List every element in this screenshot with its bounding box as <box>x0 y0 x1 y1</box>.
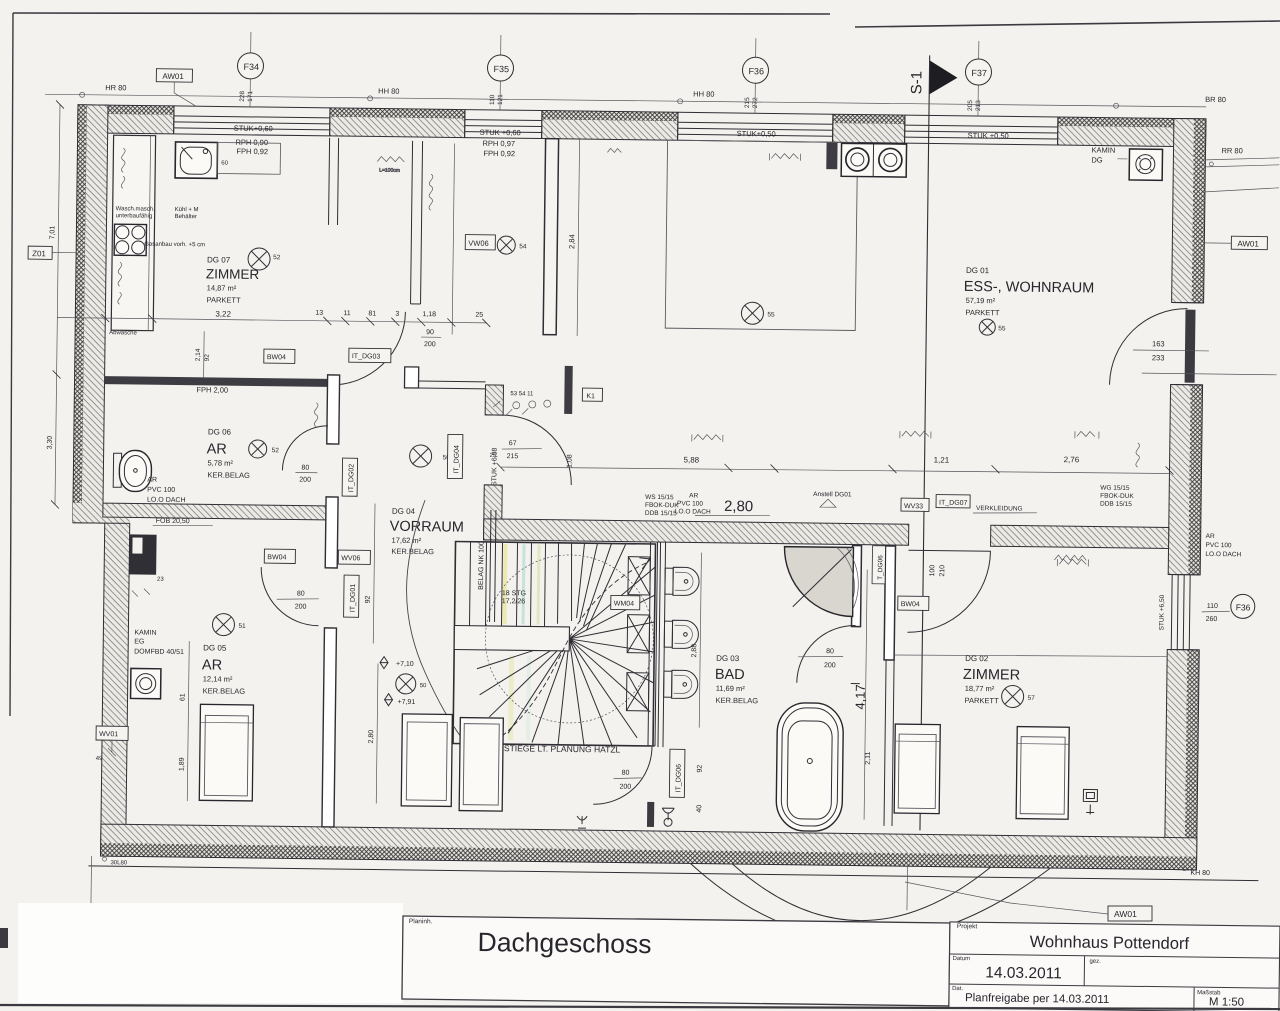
svg-text:F36: F36 <box>748 66 764 76</box>
svg-text:T_DG06: T_DG06 <box>877 555 884 580</box>
svg-text:RR 80: RR 80 <box>1221 146 1242 155</box>
svg-text:ZIMMER: ZIMMER <box>206 266 260 282</box>
svg-text:PVC 100: PVC 100 <box>1206 542 1232 549</box>
svg-text:FPH 0,92: FPH 0,92 <box>236 147 268 156</box>
svg-text:M 1:50: M 1:50 <box>1209 996 1244 1008</box>
svg-text:PARKETT: PARKETT <box>965 308 1000 317</box>
svg-text:DG 01: DG 01 <box>966 266 990 275</box>
svg-text:52: 52 <box>273 254 281 261</box>
svg-text:F35: F35 <box>493 64 509 74</box>
svg-text:Wasch.masch.: Wasch.masch. <box>116 206 156 212</box>
svg-text:BELAG NK 100: BELAG NK 100 <box>478 541 486 590</box>
svg-text:200: 200 <box>619 784 631 791</box>
svg-text:AR: AR <box>147 477 157 484</box>
svg-text:51: 51 <box>238 623 246 630</box>
svg-text:IT_DG03: IT_DG03 <box>352 353 381 360</box>
svg-text:Abwäsche: Abwäsche <box>109 330 137 336</box>
svg-text:DG 03: DG 03 <box>716 654 740 663</box>
svg-text:17,2/26: 17,2/26 <box>502 598 526 605</box>
svg-text:STUK+0,50: STUK+0,50 <box>737 129 776 138</box>
svg-text:HH 80: HH 80 <box>693 89 714 98</box>
svg-text:BW04: BW04 <box>901 601 920 608</box>
svg-text:FOB 20,50: FOB 20,50 <box>156 518 190 525</box>
svg-text:5,88: 5,88 <box>684 455 700 464</box>
svg-text:12,14 m²: 12,14 m² <box>203 674 233 683</box>
svg-text:LO.O DACH: LO.O DACH <box>1205 551 1241 558</box>
svg-text:200: 200 <box>295 603 307 610</box>
svg-text:VW06: VW06 <box>468 239 489 248</box>
svg-text:FBOK-DUK: FBOK-DUK <box>1100 493 1134 500</box>
svg-text:RPH 0,97: RPH 0,97 <box>482 139 515 148</box>
svg-text:55: 55 <box>998 325 1006 332</box>
svg-text:BAD: BAD <box>715 667 745 683</box>
svg-text:57: 57 <box>1028 695 1036 702</box>
svg-text:2,84: 2,84 <box>567 234 576 249</box>
svg-text:90: 90 <box>426 329 434 336</box>
svg-text:KER.BELAG: KER.BELAG <box>716 696 759 706</box>
svg-text:F37: F37 <box>971 68 987 78</box>
svg-text:17,62 m²: 17,62 m² <box>391 536 421 545</box>
svg-text:23: 23 <box>157 577 164 583</box>
svg-text:272: 272 <box>752 97 759 108</box>
svg-text:STUK +6,50: STUK +6,50 <box>1158 594 1165 630</box>
svg-text:3: 3 <box>395 311 399 318</box>
svg-text:60: 60 <box>221 161 228 167</box>
svg-text:STUK +0,60: STUK +0,60 <box>480 128 521 138</box>
svg-text:110: 110 <box>1207 603 1218 610</box>
svg-text:ZIMMER: ZIMMER <box>963 667 1020 684</box>
svg-text:IT_DG07: IT_DG07 <box>939 500 968 507</box>
svg-text:BW04: BW04 <box>267 354 286 361</box>
svg-text:Planfreigabe per 14.03.2011: Planfreigabe per 14.03.2011 <box>965 992 1109 1006</box>
svg-text:40: 40 <box>696 805 703 813</box>
svg-text:3,30: 3,30 <box>47 436 54 450</box>
svg-text:S-1: S-1 <box>908 71 925 95</box>
svg-text:50: 50 <box>420 683 427 689</box>
svg-text:200: 200 <box>299 477 311 484</box>
svg-text:BW04: BW04 <box>267 554 286 561</box>
svg-text:11,69 m²: 11,69 m² <box>716 684 746 693</box>
svg-text:Behälter: Behälter <box>175 214 197 220</box>
svg-text:55: 55 <box>767 311 775 318</box>
svg-text:210: 210 <box>939 565 946 577</box>
svg-text:163: 163 <box>1152 339 1165 348</box>
svg-text:2,11: 2,11 <box>865 751 872 764</box>
svg-text:WG 15/15: WG 15/15 <box>1100 485 1130 492</box>
svg-text:AR: AR <box>689 492 698 499</box>
svg-text:WV33: WV33 <box>904 503 923 510</box>
svg-text:AW01: AW01 <box>1114 909 1137 919</box>
svg-text:11: 11 <box>343 310 350 317</box>
svg-text:1,21: 1,21 <box>934 456 950 465</box>
svg-text:100: 100 <box>929 565 936 577</box>
svg-text:IT_DG02: IT_DG02 <box>348 464 355 493</box>
svg-text:STUK +0,50: STUK +0,50 <box>968 131 1009 141</box>
svg-text:2,14: 2,14 <box>195 348 202 361</box>
svg-text:KAMIN: KAMIN <box>134 629 156 636</box>
svg-text:213: 213 <box>975 100 982 111</box>
svg-text:80: 80 <box>622 770 630 777</box>
svg-text:KAMIN: KAMIN <box>1091 145 1115 154</box>
svg-text:14.03.2011: 14.03.2011 <box>985 964 1062 982</box>
svg-text:AW01: AW01 <box>162 72 184 81</box>
svg-text:61: 61 <box>180 693 187 701</box>
svg-text:1,08: 1,08 <box>566 454 573 468</box>
svg-text:WM04: WM04 <box>614 600 634 607</box>
svg-text:25: 25 <box>490 453 497 459</box>
svg-text:2,80: 2,80 <box>368 730 375 744</box>
svg-text:52: 52 <box>272 447 280 454</box>
svg-text:5,78 m²: 5,78 m² <box>207 458 233 467</box>
svg-text:215: 215 <box>744 97 751 108</box>
svg-text:81: 81 <box>368 310 376 317</box>
svg-text:2,80: 2,80 <box>724 498 753 515</box>
svg-text:unterbaufähig: unterbaufähig <box>116 213 153 219</box>
svg-text:DOMFBD 40/51: DOMFBD 40/51 <box>134 648 184 656</box>
svg-text:1,18: 1,18 <box>422 311 436 318</box>
svg-text:53 54 11: 53 54 11 <box>510 391 534 397</box>
svg-text:92: 92 <box>365 595 372 603</box>
svg-text:AR: AR <box>207 441 227 457</box>
svg-text:Projekt: Projekt <box>957 923 978 930</box>
svg-text:DG 06: DG 06 <box>208 427 232 436</box>
svg-text:Planinh.: Planinh. <box>409 918 433 925</box>
svg-text:PVC 100: PVC 100 <box>147 487 175 494</box>
svg-text:LO.O DACH: LO.O DACH <box>147 497 186 504</box>
svg-text:80: 80 <box>297 591 305 598</box>
svg-text:DG 07: DG 07 <box>207 255 231 264</box>
svg-text:+7,10: +7,10 <box>396 661 414 668</box>
svg-text:Kühl + M: Kühl + M <box>175 207 199 213</box>
svg-text:ESS-, WOHNRAUM: ESS-, WOHNRAUM <box>964 279 1095 297</box>
svg-text:PVC 100: PVC 100 <box>677 500 703 507</box>
svg-text:DDB 15/15: DDB 15/15 <box>1100 501 1132 508</box>
svg-text:18 STG: 18 STG <box>502 590 526 597</box>
svg-text:DG: DG <box>1091 155 1103 164</box>
svg-text:L=100cm: L=100cm <box>379 168 400 174</box>
svg-text:Z01: Z01 <box>32 249 46 258</box>
svg-text:WS 15/15: WS 15/15 <box>645 494 674 501</box>
svg-text:215: 215 <box>507 453 519 460</box>
svg-text:KER.BELAG: KER.BELAG <box>391 547 434 557</box>
svg-text:BR 80: BR 80 <box>1205 95 1226 104</box>
svg-text:57,19 m²: 57,19 m² <box>966 296 996 305</box>
svg-text:Gasanbau vorh. +5 cm: Gasanbau vorh. +5 cm <box>144 242 205 249</box>
svg-text:PARKETT: PARKETT <box>207 295 242 304</box>
svg-text:49: 49 <box>96 756 103 762</box>
svg-text:KER.BELAG: KER.BELAG <box>207 470 250 480</box>
svg-text:DG 05: DG 05 <box>203 643 227 652</box>
svg-text:7,01: 7,01 <box>49 226 56 240</box>
svg-text:DG 04: DG 04 <box>392 507 416 516</box>
svg-text:VERKLEIDUNG: VERKLEIDUNG <box>976 505 1023 513</box>
svg-text:67: 67 <box>509 440 517 447</box>
svg-text:260: 260 <box>1206 616 1218 623</box>
svg-text:200: 200 <box>424 341 436 348</box>
svg-text:80: 80 <box>826 648 834 655</box>
svg-text:25: 25 <box>475 312 483 319</box>
svg-text:AR: AR <box>202 657 222 673</box>
svg-text:F34: F34 <box>243 62 259 72</box>
svg-text:Dachgeschoss: Dachgeschoss <box>477 927 651 959</box>
svg-text:30L80: 30L80 <box>110 860 127 866</box>
svg-text:HH 80: HH 80 <box>378 86 399 95</box>
svg-text:Datum: Datum <box>952 956 970 962</box>
svg-text:WV06: WV06 <box>341 555 360 562</box>
svg-text:92: 92 <box>697 765 704 773</box>
svg-text:WV01: WV01 <box>99 731 118 738</box>
svg-text:Dat.: Dat. <box>952 986 963 992</box>
svg-text:STUK+0,60: STUK+0,60 <box>234 124 273 133</box>
svg-text:Anstell DG01: Anstell DG01 <box>813 491 852 498</box>
svg-text:KH 80: KH 80 <box>1190 870 1210 877</box>
svg-text:K1: K1 <box>586 393 595 400</box>
svg-text:2,88: 2,88 <box>691 644 698 658</box>
svg-text:1,89: 1,89 <box>179 757 186 771</box>
svg-text:VORRAUM: VORRAUM <box>390 519 464 536</box>
svg-text:AR: AR <box>1206 533 1215 540</box>
svg-text:F36: F36 <box>1236 602 1251 612</box>
svg-text:HR 80: HR 80 <box>105 83 126 92</box>
svg-text:2,76: 2,76 <box>1064 455 1080 464</box>
svg-text:FPH 0,92: FPH 0,92 <box>483 149 515 158</box>
svg-text:IT_DG01: IT_DG01 <box>350 584 357 613</box>
svg-text:Wohnhaus Pottendorf: Wohnhaus Pottendorf <box>1030 933 1190 953</box>
svg-text:FPH 2,00: FPH 2,00 <box>196 385 228 394</box>
svg-text:IT_DG04: IT_DG04 <box>453 445 460 474</box>
svg-text:PARKETT: PARKETT <box>965 696 1000 705</box>
svg-text:200: 200 <box>824 662 836 669</box>
svg-text:14,87 m²: 14,87 m² <box>207 283 237 292</box>
svg-text:92: 92 <box>204 354 211 362</box>
svg-text:KER.BELAG: KER.BELAG <box>203 686 246 696</box>
svg-text:4,17: 4,17 <box>852 684 867 709</box>
svg-text:EG: EG <box>134 638 144 645</box>
svg-text:IT_DG06: IT_DG06 <box>675 764 682 793</box>
svg-text:110: 110 <box>489 94 496 105</box>
svg-text:3,22: 3,22 <box>215 309 231 318</box>
svg-text:+7,91: +7,91 <box>397 699 415 706</box>
svg-text:13: 13 <box>315 310 323 317</box>
svg-text:18,77 m²: 18,77 m² <box>965 684 995 693</box>
svg-text:LO.O DACH: LO.O DACH <box>675 508 711 515</box>
svg-text:STIEGE LT. PLANUNG HATZL: STIEGE LT. PLANUNG HATZL <box>504 743 621 754</box>
svg-text:233: 233 <box>1152 353 1165 362</box>
svg-text:54: 54 <box>519 243 527 250</box>
svg-text:DDB 15/15: DDB 15/15 <box>645 510 677 517</box>
svg-text:gez.: gez. <box>1089 959 1101 965</box>
svg-text:205: 205 <box>967 100 974 111</box>
svg-text:80: 80 <box>301 465 309 472</box>
svg-text:AW01: AW01 <box>1237 239 1259 248</box>
